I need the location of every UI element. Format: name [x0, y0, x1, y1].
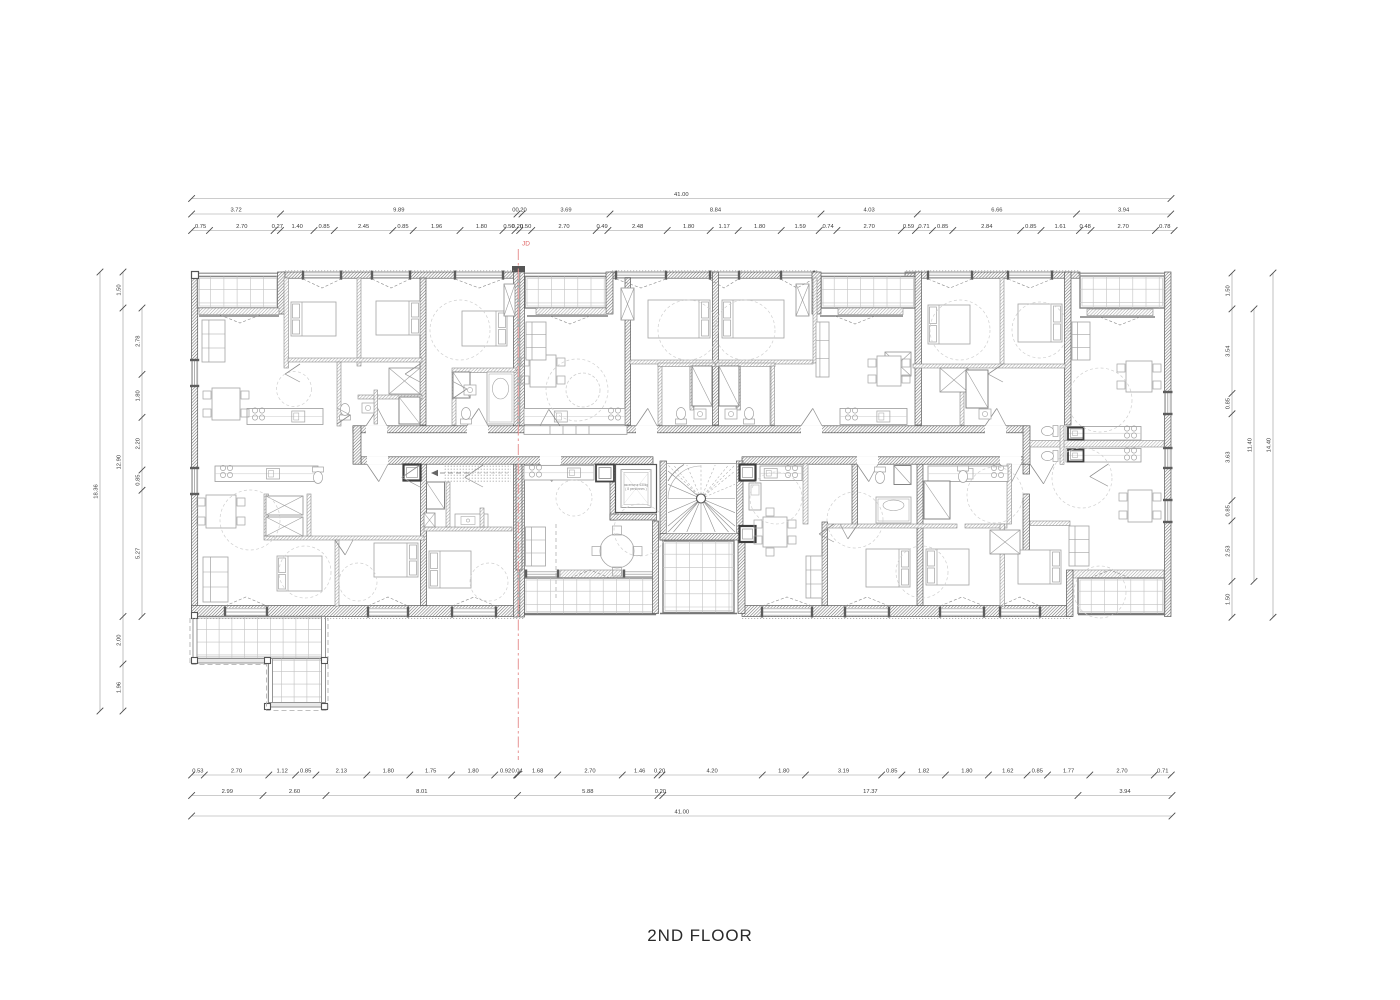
svg-text:0.85: 0.85 [1025, 224, 1036, 230]
svg-text:1.46: 1.46 [634, 769, 645, 775]
svg-text:1.80: 1.80 [136, 390, 142, 401]
svg-text:0.20: 0.20 [654, 769, 665, 775]
svg-text:3.19: 3.19 [838, 769, 849, 775]
svg-text:4.03: 4.03 [863, 208, 874, 214]
svg-text:6.66: 6.66 [991, 208, 1002, 214]
svg-text:1.82: 1.82 [918, 769, 929, 775]
svg-text:14.40: 14.40 [1267, 438, 1273, 453]
svg-text:2.53: 2.53 [1226, 545, 1232, 556]
svg-text:17.37: 17.37 [863, 789, 878, 795]
svg-text:0.85: 0.85 [937, 224, 948, 230]
svg-text:2.13: 2.13 [336, 769, 347, 775]
svg-text:2.70: 2.70 [558, 224, 569, 230]
svg-text:3.72: 3.72 [230, 208, 241, 214]
svg-text:1.50: 1.50 [1226, 285, 1232, 296]
svg-text:2.70: 2.70 [231, 769, 242, 775]
svg-text:2.45: 2.45 [358, 224, 369, 230]
svg-text:1.80: 1.80 [778, 769, 789, 775]
svg-text:0.85: 0.85 [1226, 505, 1232, 516]
svg-text:0.74: 0.74 [822, 224, 834, 230]
svg-text:0.85: 0.85 [1226, 398, 1232, 409]
svg-text:0.71: 0.71 [918, 224, 929, 230]
svg-text:1.96: 1.96 [431, 224, 442, 230]
svg-text:JD: JD [522, 241, 530, 248]
svg-text:3.69: 3.69 [560, 208, 571, 214]
svg-text:1.59: 1.59 [795, 224, 806, 230]
svg-text:0.04: 0.04 [511, 769, 523, 775]
svg-text:1.77: 1.77 [1063, 769, 1074, 775]
svg-text:9.89: 9.89 [393, 208, 404, 214]
svg-text:0.20: 0.20 [655, 789, 666, 795]
svg-text:1.50: 1.50 [1226, 594, 1232, 605]
svg-text:0.59: 0.59 [903, 224, 914, 230]
svg-text:18.36: 18.36 [94, 484, 100, 499]
svg-text:0.85: 0.85 [318, 224, 329, 230]
svg-text:0.71: 0.71 [1157, 769, 1168, 775]
svg-text:4.20: 4.20 [706, 769, 717, 775]
svg-text:41.00: 41.00 [675, 810, 690, 816]
svg-text:2.70: 2.70 [1116, 769, 1127, 775]
svg-text:5.27: 5.27 [136, 548, 142, 559]
svg-text:1.75: 1.75 [425, 769, 436, 775]
svg-text:1.96: 1.96 [117, 682, 123, 693]
svg-text:2.70: 2.70 [236, 224, 247, 230]
svg-text:1.40: 1.40 [292, 224, 303, 230]
svg-text:41.00: 41.00 [674, 192, 689, 198]
svg-text:1.80: 1.80 [961, 769, 972, 775]
svg-text:2ND FLOOR: 2ND FLOOR [647, 926, 752, 945]
svg-text:8.01: 8.01 [416, 789, 427, 795]
svg-text:0.75: 0.75 [195, 224, 206, 230]
svg-text:2.48: 2.48 [632, 224, 643, 230]
svg-text:2.84: 2.84 [981, 224, 993, 230]
svg-text:1.17: 1.17 [719, 224, 730, 230]
svg-text:1.62: 1.62 [1002, 769, 1013, 775]
svg-text:0.27: 0.27 [272, 224, 283, 230]
svg-text:3.54: 3.54 [1226, 345, 1232, 357]
svg-text:0.48: 0.48 [1080, 224, 1091, 230]
svg-text:1.80: 1.80 [467, 769, 478, 775]
svg-text:0.49: 0.49 [596, 224, 607, 230]
svg-text:2.70: 2.70 [584, 769, 595, 775]
svg-text:1.80: 1.80 [476, 224, 487, 230]
svg-text:2.70: 2.70 [1118, 224, 1129, 230]
svg-text:8.84: 8.84 [710, 208, 722, 214]
svg-text:2.99: 2.99 [222, 789, 233, 795]
svg-text:2.00: 2.00 [117, 635, 123, 646]
svg-text:0.92: 0.92 [500, 769, 511, 775]
svg-text:0.53: 0.53 [192, 769, 203, 775]
svg-text:3.94: 3.94 [1118, 208, 1130, 214]
svg-text:1.12: 1.12 [277, 769, 288, 775]
svg-text:1.80: 1.80 [383, 769, 394, 775]
svg-text:3.63: 3.63 [1226, 452, 1232, 463]
svg-text:5.88: 5.88 [582, 789, 593, 795]
svg-text:2.20: 2.20 [136, 438, 142, 449]
svg-text:0.85: 0.85 [886, 769, 897, 775]
svg-text:1.80: 1.80 [754, 224, 765, 230]
svg-text:1.68: 1.68 [532, 769, 543, 775]
svg-text:0.85: 0.85 [397, 224, 408, 230]
svg-text:0.85: 0.85 [1032, 769, 1043, 775]
svg-text:12.90: 12.90 [117, 455, 123, 470]
svg-text:0.78: 0.78 [1159, 224, 1170, 230]
svg-text:2.60: 2.60 [289, 789, 300, 795]
svg-text:0.85: 0.85 [300, 769, 311, 775]
svg-text:00.20: 00.20 [512, 208, 527, 214]
svg-text:1.61: 1.61 [1055, 224, 1066, 230]
svg-text:1.50: 1.50 [117, 284, 123, 295]
svg-text:( 8 personnes ): ( 8 personnes ) [625, 487, 646, 491]
svg-text:11.40: 11.40 [1248, 438, 1254, 452]
svg-text:2.78: 2.78 [136, 336, 142, 347]
svg-text:1.80: 1.80 [683, 224, 694, 230]
svg-text:0.50: 0.50 [520, 224, 531, 230]
svg-text:0.85: 0.85 [136, 474, 142, 485]
svg-text:3.94: 3.94 [1119, 789, 1131, 795]
svg-text:2.70: 2.70 [864, 224, 875, 230]
